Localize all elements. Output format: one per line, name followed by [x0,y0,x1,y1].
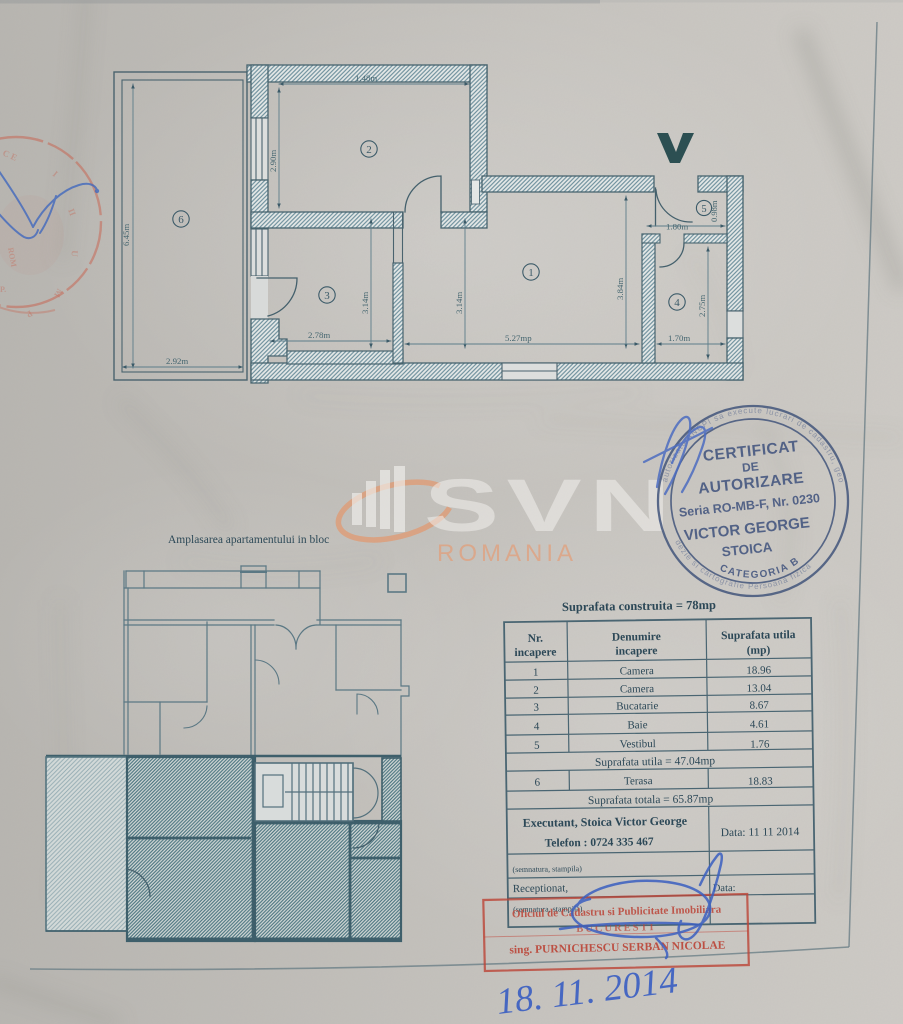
svg-text:Telefon : 0724 335 467: Telefon : 0724 335 467 [545,836,654,850]
svg-text:Nr.: Nr. [528,633,544,645]
svg-text:2.90m: 2.90m [268,150,278,172]
svg-text:2: 2 [533,685,539,697]
svg-text:3: 3 [533,702,539,714]
svg-text:4.61: 4.61 [750,718,769,730]
svg-text:3: 3 [324,290,330,302]
svg-text:1.76: 1.76 [750,738,770,750]
svg-text:4: 4 [534,721,540,733]
svg-text:P.: P. [0,285,6,294]
svg-text:Receptionat,: Receptionat, [513,882,569,895]
svg-text:ROMANIA: ROMANIA [437,540,577,567]
svg-text:DE: DE [741,459,759,475]
svg-text:Suprafata utila = 47.04mp: Suprafata utila = 47.04mp [595,755,716,769]
svg-text:6: 6 [178,214,184,226]
svg-text:Data: 11 11 2014: Data: 11 11 2014 [721,826,800,839]
svg-text:1: 1 [528,267,534,279]
svg-text:Terasa: Terasa [624,775,653,787]
svg-text:Suprafata totala = 65.87mp: Suprafata totala = 65.87mp [588,793,714,807]
svg-text:18.96: 18.96 [746,664,771,676]
svg-text:4: 4 [674,297,680,309]
svg-text:13.04: 13.04 [747,682,772,694]
svg-text:8.67: 8.67 [750,699,770,711]
svg-text:Suprafata utila: Suprafata utila [721,629,796,642]
svg-text:1: 1 [533,667,539,679]
svg-text:Suprafata construita = 78mp: Suprafata construita = 78mp [562,598,716,614]
svg-text:Amplasarea apartamentului in b: Amplasarea apartamentului in bloc [168,534,329,546]
svg-text:Bucatarie: Bucatarie [616,700,658,713]
svg-text:(mp): (mp) [747,644,771,656]
svg-text:6: 6 [534,777,540,789]
svg-text:Vestibul: Vestibul [620,738,656,751]
svg-text:0.98m: 0.98m [709,200,719,222]
svg-text:Camera: Camera [620,665,654,677]
svg-text:Executant, Stoica Victor Georg: Executant, Stoica Victor George [523,814,688,830]
svg-text:incapere: incapere [615,645,657,658]
svg-text:Denumire: Denumire [612,631,661,644]
svg-text:2.75m: 2.75m [697,295,707,317]
svg-text:1.70m: 1.70m [668,333,690,343]
svg-text:(semnatura, stampila): (semnatura, stampila) [512,864,582,874]
svg-text:1.80m: 1.80m [666,222,688,232]
svg-text:Baie: Baie [627,719,647,731]
svg-text:5.27mp: 5.27mp [505,333,532,343]
svg-text:2.92m: 2.92m [166,356,188,366]
svg-text:3.84m: 3.84m [615,278,625,300]
svg-text:3.14m: 3.14m [360,292,370,314]
svg-text:6.45m: 6.45m [121,224,131,246]
svg-text:2: 2 [366,144,372,156]
svg-text:18.83: 18.83 [748,775,773,787]
svg-text:1.48m: 1.48m [355,73,377,83]
svg-text:5: 5 [534,740,540,752]
svg-text:2.78m: 2.78m [308,330,330,340]
svg-text:5: 5 [701,204,706,215]
svg-text:SVN: SVN [424,465,678,547]
svg-text:Camera: Camera [620,683,654,695]
svg-text:3.14m: 3.14m [454,292,464,314]
svg-text:incapere: incapere [514,646,556,659]
